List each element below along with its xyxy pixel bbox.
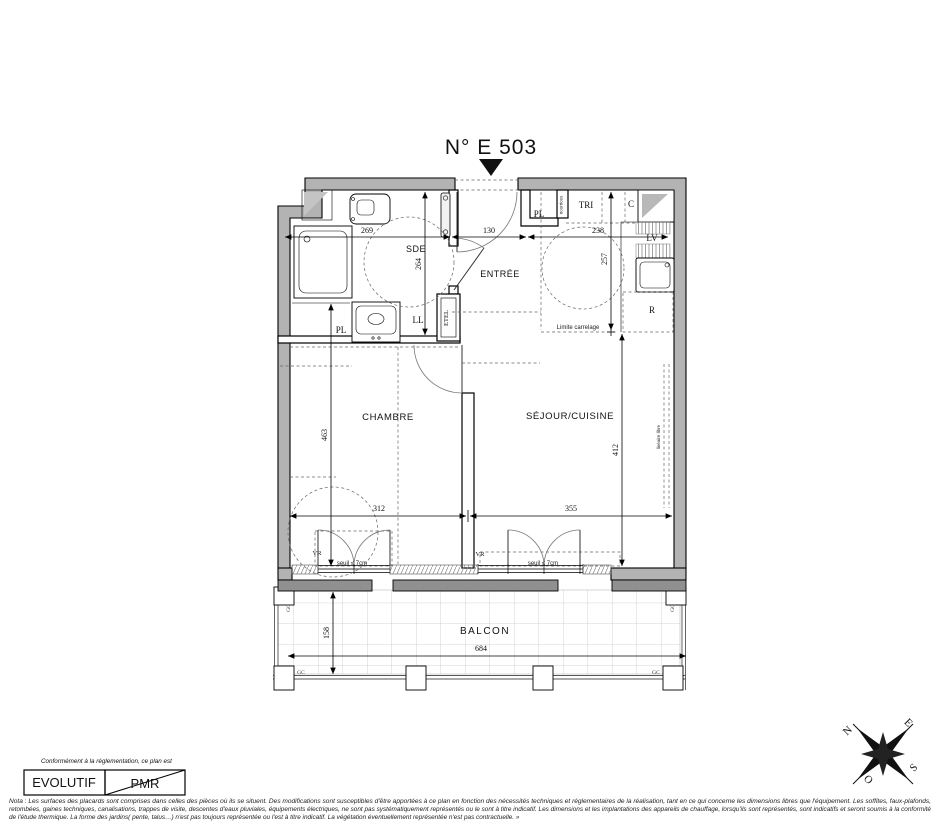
pmr-circle-entree xyxy=(542,227,624,309)
legend-evolutif-label: EVOLUTIF xyxy=(32,775,96,790)
dim-chambre-width: 312 xyxy=(373,504,385,513)
sill-hatch xyxy=(390,565,478,574)
balcony-post xyxy=(663,666,683,690)
dim-balcon-height: 158 xyxy=(322,627,331,639)
seuil-label: seuil ≤ 7cm xyxy=(528,561,558,567)
dim-balcon-width: 684 xyxy=(475,644,487,653)
balcony-post xyxy=(274,666,294,690)
wall-bottom-left-stub xyxy=(278,568,292,580)
limite-carrelage-label: Limite carrelage xyxy=(557,325,600,331)
balcony-post xyxy=(533,666,553,690)
sde-wall-stub xyxy=(449,286,458,294)
toilet xyxy=(350,194,390,224)
kitchen-sink xyxy=(636,258,674,292)
room-label-sejour: SÉJOUR/CUISINE xyxy=(526,411,614,422)
dishwasher-hatch xyxy=(636,244,670,258)
wall-bottom-right xyxy=(611,568,686,580)
facade-slab-block xyxy=(278,580,372,591)
page-title: N° E 503 xyxy=(445,136,537,159)
floor-plan-sheet: N° E 503 GC GC GC GC BALCON xyxy=(0,0,940,832)
entrance-marker-icon xyxy=(479,159,503,176)
closet-label-pl-chambre: PL xyxy=(336,325,347,335)
room-label-balcon: BALCON xyxy=(460,626,510,637)
balcony-post xyxy=(406,666,426,690)
ceiling-dashes-chambre xyxy=(280,347,460,564)
seuil-label: seuil ≤ 7cm xyxy=(337,561,367,567)
compass-rose: N E S O xyxy=(841,716,920,787)
entrance-door-swing xyxy=(457,192,517,252)
closet-label-tri: TRI xyxy=(579,200,594,210)
room-label-chambre: CHAMBRE xyxy=(362,412,414,423)
lineaire-libre-lines xyxy=(664,364,669,508)
closet-label-c: C xyxy=(628,199,634,209)
compass-e: E xyxy=(901,716,914,729)
dim-kitchen-height: 257 xyxy=(600,253,609,265)
gc-label: GC xyxy=(286,604,292,612)
room-label-entree: ENTRÉE xyxy=(480,269,520,279)
vr-label: VR xyxy=(475,551,485,558)
nota-line-2: retombées, gaines techniques, canalisati… xyxy=(9,806,931,813)
sill-hatch xyxy=(583,565,611,574)
legend: Conformément à la réglementation, ce pla… xyxy=(24,758,185,795)
vr-label: VR xyxy=(312,550,322,557)
facade-slab-block xyxy=(612,580,686,591)
dim-sde-height: 264 xyxy=(414,258,423,270)
chambre-sejour-wall xyxy=(462,393,474,568)
compass-n: N xyxy=(841,724,855,738)
dim-tri-width: 238 xyxy=(592,226,604,235)
dim-entree-width: 130 xyxy=(483,226,495,235)
lineaire-libre-label: linéaire libre xyxy=(656,424,661,449)
equipment-label-nourrices: nourrices xyxy=(559,195,564,214)
gc-label: GC xyxy=(670,604,676,612)
compass-s: S xyxy=(907,761,920,774)
equipment-label-r: R xyxy=(649,305,655,315)
chambre-door-swing xyxy=(414,345,462,393)
gc-label: GC xyxy=(297,670,305,676)
towel-radiator xyxy=(441,193,450,237)
wall-top-right xyxy=(518,178,686,568)
pl-closet-wall xyxy=(521,190,558,226)
entrance-opening-dashes xyxy=(455,180,518,190)
equipment-label-ll: LL xyxy=(413,315,424,325)
equipment-label-lv: LV xyxy=(646,233,658,243)
gc-label: GC xyxy=(652,670,660,676)
dim-sejour-height: 412 xyxy=(611,444,620,456)
legend-caption: Conformément à la réglementation, ce pla… xyxy=(41,758,172,765)
dim-chambre-height: 463 xyxy=(320,429,329,441)
closet-label-pl: PL xyxy=(534,209,545,219)
room-label-sde: SDE xyxy=(406,244,426,254)
fixtures xyxy=(294,193,674,342)
labels: SDE ENTRÉE CHAMBRE SÉJOUR/CUISINE PL PL … xyxy=(312,195,661,567)
dim-sde-width: 269 xyxy=(361,226,373,235)
nota-line-3: de l'étude thermique. La forme des jardi… xyxy=(9,814,520,821)
facade-slab-block xyxy=(393,580,558,591)
balcony: GC GC GC GC BALCON xyxy=(273,586,686,690)
legend-pmr-label: PMR xyxy=(131,776,160,791)
dim-sejour-width: 355 xyxy=(565,504,577,513)
nota-line-1: Nota : Les surfaces des placards sont co… xyxy=(9,798,931,805)
equipment-label-etel: ETEL xyxy=(443,310,450,326)
nota-text: Nota : Les surfaces des placards sont co… xyxy=(9,798,931,821)
plan-drawing: N° E 503 GC GC GC GC BALCON xyxy=(0,0,940,832)
vanity-unit xyxy=(352,302,400,342)
